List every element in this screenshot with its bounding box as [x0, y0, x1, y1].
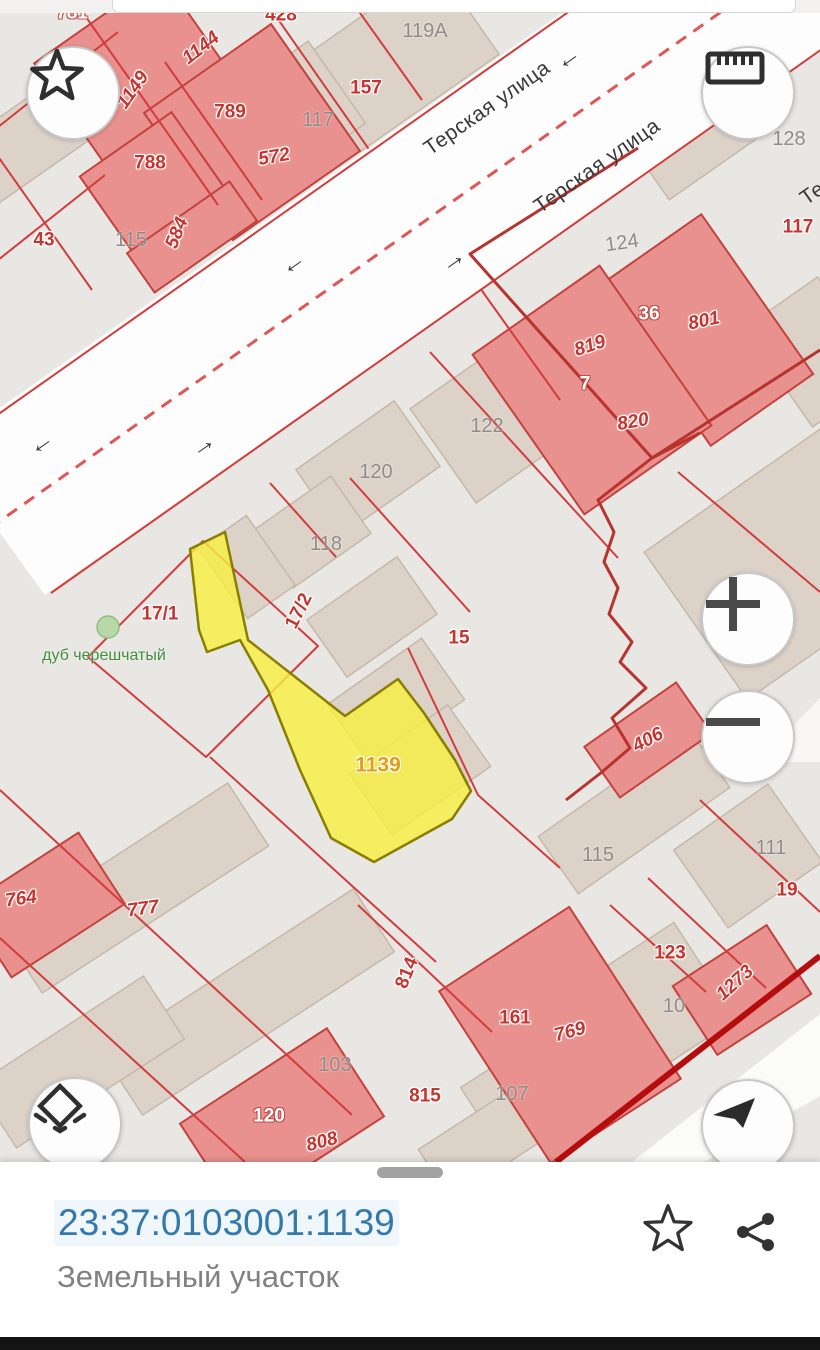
favorite-button[interactable]	[26, 46, 120, 140]
share-button[interactable]	[728, 1204, 784, 1260]
navigation-arrow-icon	[703, 1081, 763, 1141]
zoom-out-button[interactable]	[701, 690, 795, 784]
object-type-label: Земельный участок	[57, 1259, 339, 1295]
compass-button[interactable]	[701, 1079, 795, 1162]
app-screen: 7814281149114478957278858443115157117119…	[0, 0, 820, 1350]
layers-icon	[30, 1079, 90, 1139]
favorite-action-button[interactable]	[640, 1202, 696, 1258]
android-nav-bar	[0, 1337, 820, 1350]
star-outline-icon	[641, 1203, 695, 1257]
plus-icon	[703, 574, 763, 634]
sheet-drag-handle[interactable]	[377, 1167, 443, 1178]
layers-button[interactable]	[28, 1077, 122, 1162]
search-bar-edge[interactable]	[112, 0, 796, 13]
star-icon	[28, 48, 86, 106]
map-graphics	[0, 0, 820, 1162]
status-strip	[0, 0, 820, 13]
cadastral-number-link[interactable]: 23:37:0103001:1139	[54, 1200, 399, 1246]
ruler-icon	[703, 48, 767, 88]
minus-icon	[703, 692, 763, 752]
zoom-in-button[interactable]	[701, 572, 795, 666]
bottom-sheet: 23:37:0103001:1139 Земельный участок	[0, 1162, 820, 1337]
tree-marker	[97, 616, 119, 638]
map-canvas[interactable]: 7814281149114478957278858443115157117119…	[0, 0, 820, 1162]
measure-button[interactable]	[701, 46, 795, 140]
share-icon	[731, 1207, 781, 1257]
